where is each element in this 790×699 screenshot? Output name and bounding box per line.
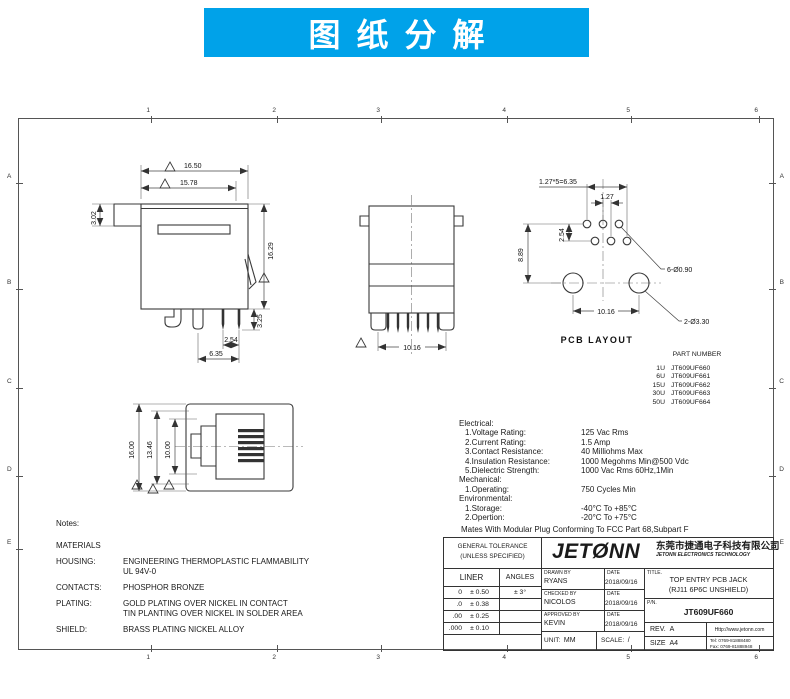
angle-tolerance: ± 3° xyxy=(499,589,541,596)
rev-cell: REV. A xyxy=(650,626,674,633)
notes-section: Notes: MATERIALS HOUSING: ENGINEERING TH… xyxy=(56,519,386,635)
dimension-label: 10.16 xyxy=(403,345,421,352)
pn-label: P/N. xyxy=(647,600,657,606)
drawing-title-line2: (RJ11 6P6C UNSHIELD) xyxy=(644,585,773,594)
recycle-triangle-icon xyxy=(132,480,142,489)
dimension-label: 1.27 xyxy=(600,194,614,201)
spec-row: 2.Opertion:-20°C To +75°C xyxy=(465,513,781,522)
recycle-triangle-icon xyxy=(165,162,175,171)
dimension-label: 3.25 xyxy=(257,314,264,328)
dimension-label: 2.54 xyxy=(224,337,238,344)
drawn-date: 2018/09/16 xyxy=(605,579,638,586)
size-cell: SIZE A4 xyxy=(650,640,678,647)
recycle-triangle-icon xyxy=(148,484,158,493)
general-tolerance-label: GENERAL TOLERANCE xyxy=(444,543,541,550)
side-view-drawing: 16.50 15.78 3.02 xyxy=(46,141,294,381)
spec-row: 2.Current Rating:1.5 Amp xyxy=(465,438,781,447)
dimension-label: 2.54 xyxy=(559,228,566,242)
drawn-by-value: RYANS xyxy=(544,578,567,585)
dimension-label: 16.29 xyxy=(268,242,275,260)
zone-letter: A xyxy=(780,173,784,180)
dimension-label: 1.27*5=6.35 xyxy=(539,179,577,186)
drawing-title-line1: TOP ENTRY PCB JACK xyxy=(644,575,773,584)
recycle-triangle-icon xyxy=(160,179,170,188)
zone-tick xyxy=(16,183,23,184)
page: 图纸分解 1 2 3 4 5 6 1 2 3 4 5 6 A xyxy=(0,0,790,699)
spec-row: 4.Insulation Resistance:1000 Megohms Min… xyxy=(465,457,781,466)
zone-number: 1 xyxy=(138,107,150,114)
general-tolerance-label2: (UNLESS SPECIFIED) xyxy=(444,553,541,560)
recycle-triangle-icon xyxy=(356,338,366,347)
zone-letter: B xyxy=(780,279,784,286)
zone-tick xyxy=(769,183,776,184)
website: Http://www.jetonn.com xyxy=(706,627,773,633)
zone-number: 6 xyxy=(746,107,758,114)
company-logo: JETØNN xyxy=(552,540,640,564)
front-view-drawing: 16.00 13.46 10.00 xyxy=(109,396,309,516)
zone-tick xyxy=(16,388,23,389)
materials-title: MATERIALS xyxy=(56,541,386,551)
dimension-label: 13.46 xyxy=(147,441,154,459)
dimension-label: 15.78 xyxy=(180,180,198,187)
date-label: DATE xyxy=(607,612,620,618)
title-block: GENERAL TOLERANCE (UNLESS SPECIFIED) LIN… xyxy=(443,537,774,651)
spec-row: 1.Operating:750 Cycles Min xyxy=(465,485,781,494)
scale-cell: SCALE: / xyxy=(601,637,630,644)
checked-by-value: NICOLOS xyxy=(544,599,576,606)
zone-letter: E xyxy=(7,539,11,546)
pcb-layout-drawing: 1.27*5=6.35 1.27 2.54 8.89 10.16 6-Ø0 xyxy=(493,173,723,355)
zone-letter: C xyxy=(779,378,784,385)
table-row: 1U JT609UF660 xyxy=(641,365,753,374)
table-row: 6U JT609UF661 xyxy=(641,373,753,382)
recycle-triangle-icon xyxy=(164,480,174,489)
part-number-title: PART NUMBER xyxy=(641,351,753,360)
dimension-label: 8.89 xyxy=(518,248,525,262)
dimension-label: 16.50 xyxy=(184,163,202,170)
drawing-sheet: 1 2 3 4 5 6 1 2 3 4 5 6 A B C D E A xyxy=(18,118,774,650)
dimension-label: 6.35 xyxy=(209,351,223,358)
spec-row: 1.Voltage Rating:125 Vac Rms xyxy=(465,428,781,437)
dimension-label: 3.02 xyxy=(91,211,98,225)
zone-number: 4 xyxy=(494,654,506,661)
drawn-by-label: DRAWN BY xyxy=(544,570,571,576)
zone-tick xyxy=(507,116,508,123)
spec-heading: Electrical: xyxy=(459,419,781,428)
material-row: CONTACTS: PHOSPHOR BRONZE xyxy=(56,583,386,593)
zone-number: 2 xyxy=(264,107,276,114)
zone-number: 4 xyxy=(494,107,506,114)
zone-letter: A xyxy=(7,173,11,180)
zone-number: 2 xyxy=(264,654,276,661)
zone-tick xyxy=(631,116,632,123)
tolerance-row: .000± 0.10 xyxy=(447,625,497,632)
zone-tick xyxy=(151,645,152,652)
date-label: DATE xyxy=(607,570,620,576)
zone-tick xyxy=(759,116,760,123)
zone-tick xyxy=(16,289,23,290)
zone-number: 1 xyxy=(138,654,150,661)
spec-heading: Environmental: xyxy=(459,494,781,503)
zone-number: 5 xyxy=(618,654,630,661)
spec-section: Electrical: 1.Voltage Rating:125 Vac Rms… xyxy=(456,419,781,535)
unit-cell: UNIT: MM xyxy=(544,637,576,644)
tolerance-row: .00± 0.25 xyxy=(447,613,497,620)
approved-date: 2018/09/16 xyxy=(605,621,638,628)
contact-cell: Tel: 0769-81888480 Fax: 0769-81888948 xyxy=(710,638,752,649)
table-row: 30U JT609UF663 xyxy=(641,390,753,399)
zone-number: 3 xyxy=(368,654,380,661)
notes-title: Notes: xyxy=(56,519,386,529)
zone-tick xyxy=(381,645,382,652)
banner-title: 图纸分解 xyxy=(292,10,500,56)
company-name: 东莞市捷通电子科技有限公司 JETONN ELECTRONICS TECHNOL… xyxy=(656,541,780,558)
tolerance-row: .0± 0.38 xyxy=(447,601,497,608)
angles-header: ANGLES xyxy=(499,574,541,581)
dimension-label: 16.00 xyxy=(129,441,136,459)
material-row: PLATING: GOLD PLATING OVER NICKEL IN CON… xyxy=(56,599,386,619)
part-number-table: PART NUMBER 1U JT609UF660 6U JT609UF661 … xyxy=(641,351,753,408)
hole-callout: 6-Ø0.90 xyxy=(667,267,692,274)
zone-tick xyxy=(769,388,776,389)
zone-letter: D xyxy=(7,466,12,473)
zone-number: 3 xyxy=(368,107,380,114)
date-label: DATE xyxy=(607,591,620,597)
approved-by-value: KEVIN xyxy=(544,620,565,627)
rear-view-drawing: 10.16 xyxy=(331,169,491,364)
spec-footnote: Mates With Modular Plug Conforming To FC… xyxy=(461,525,781,534)
zone-tick xyxy=(277,645,278,652)
zone-letter: E xyxy=(780,539,784,546)
spec-heading: Mechanical: xyxy=(459,475,781,484)
pcb-layout-caption: PCB LAYOUT xyxy=(561,335,634,345)
table-row: 50U JT609UF664 xyxy=(641,399,753,408)
checked-by-label: CHECKED BY xyxy=(544,591,577,597)
approved-by-label: APPROVED BY xyxy=(544,612,580,618)
tolerance-row: 0± 0.50 xyxy=(447,589,497,596)
checked-date: 2018/09/16 xyxy=(605,600,638,607)
zone-letter: C xyxy=(7,378,12,385)
zone-number: 5 xyxy=(618,107,630,114)
spec-row: 3.Contact Resistance:40 Milliohms Max xyxy=(465,447,781,456)
dimension-label: 10.16 xyxy=(597,309,615,316)
part-number-value: JT609UF660 xyxy=(644,607,773,617)
zone-tick xyxy=(381,116,382,123)
zone-tick xyxy=(16,476,23,477)
zone-tick xyxy=(151,116,152,123)
zone-number: 6 xyxy=(746,654,758,661)
zone-tick xyxy=(277,116,278,123)
zone-letter: B xyxy=(7,279,11,286)
material-row: HOUSING: ENGINEERING THERMOPLASTIC FLAMM… xyxy=(56,557,386,577)
hole-callout: 2-Ø3.30 xyxy=(684,319,709,326)
spec-row: 1.Storage:-40°C To +85°C xyxy=(465,504,781,513)
zone-tick xyxy=(769,289,776,290)
dimension-label: 10.00 xyxy=(165,441,172,459)
spec-row: 5.Dielectric Strength:1000 Vac Rms 60Hz,… xyxy=(465,466,781,475)
liner-header: LINER xyxy=(444,573,499,582)
material-row: SHIELD: BRASS PLATING NICKEL ALLOY xyxy=(56,625,386,635)
zone-tick xyxy=(16,549,23,550)
banner: 图纸分解 xyxy=(204,8,589,57)
table-row: 15U JT609UF662 xyxy=(641,382,753,391)
